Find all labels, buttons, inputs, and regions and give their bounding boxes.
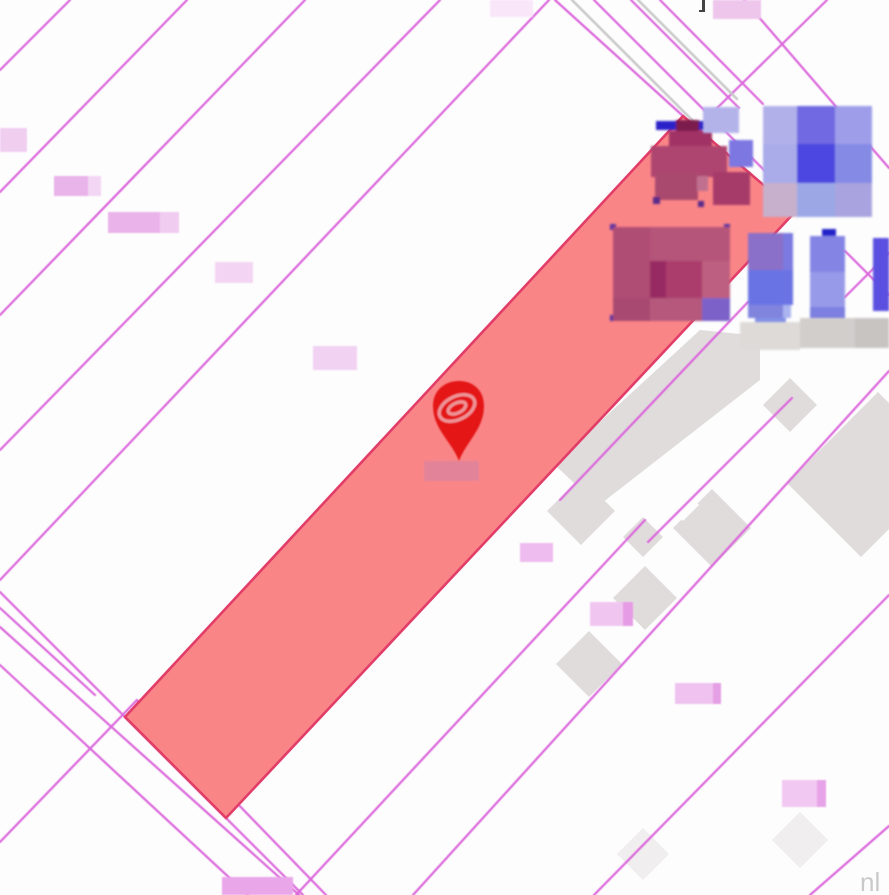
svg-text:nl: nl <box>860 867 880 895</box>
